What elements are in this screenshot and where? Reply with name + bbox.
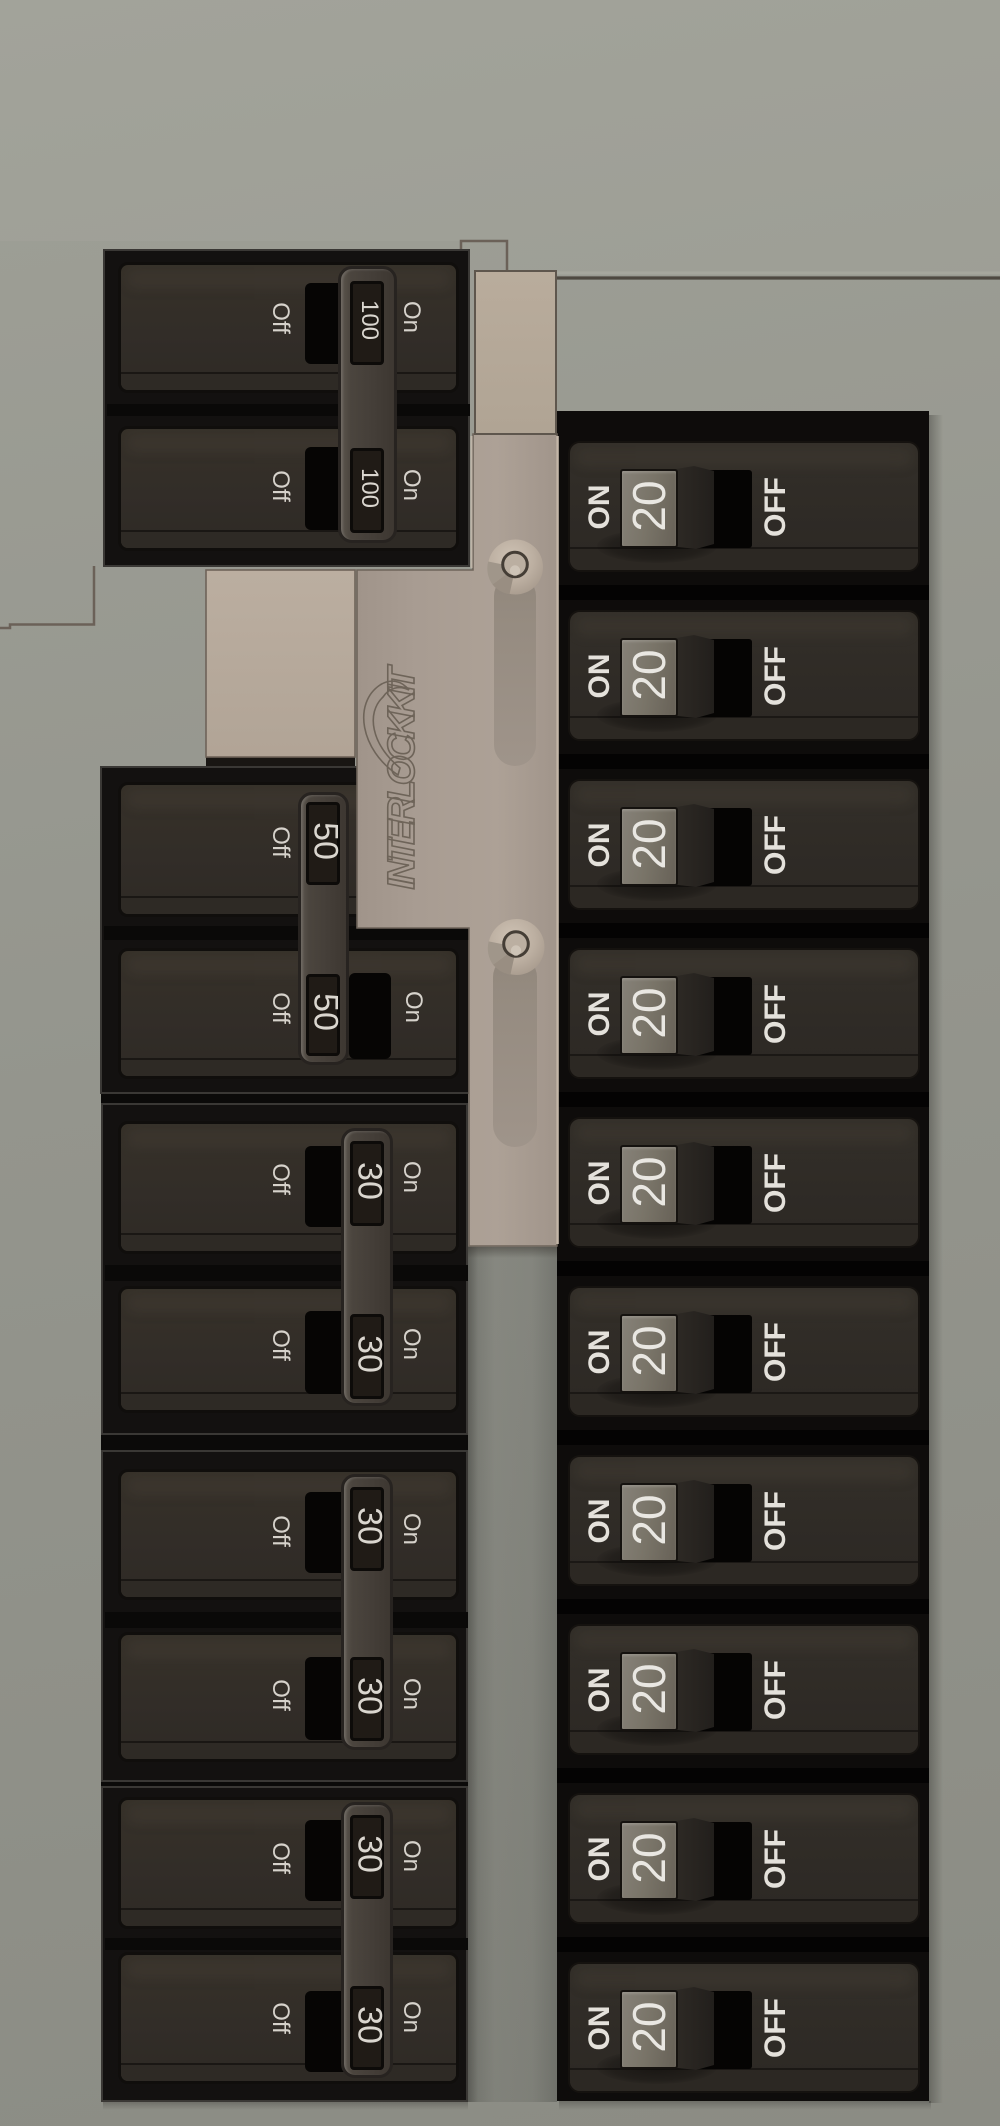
svg-text:INTERLOCKKIT: INTERLOCKKIT bbox=[381, 664, 423, 889]
